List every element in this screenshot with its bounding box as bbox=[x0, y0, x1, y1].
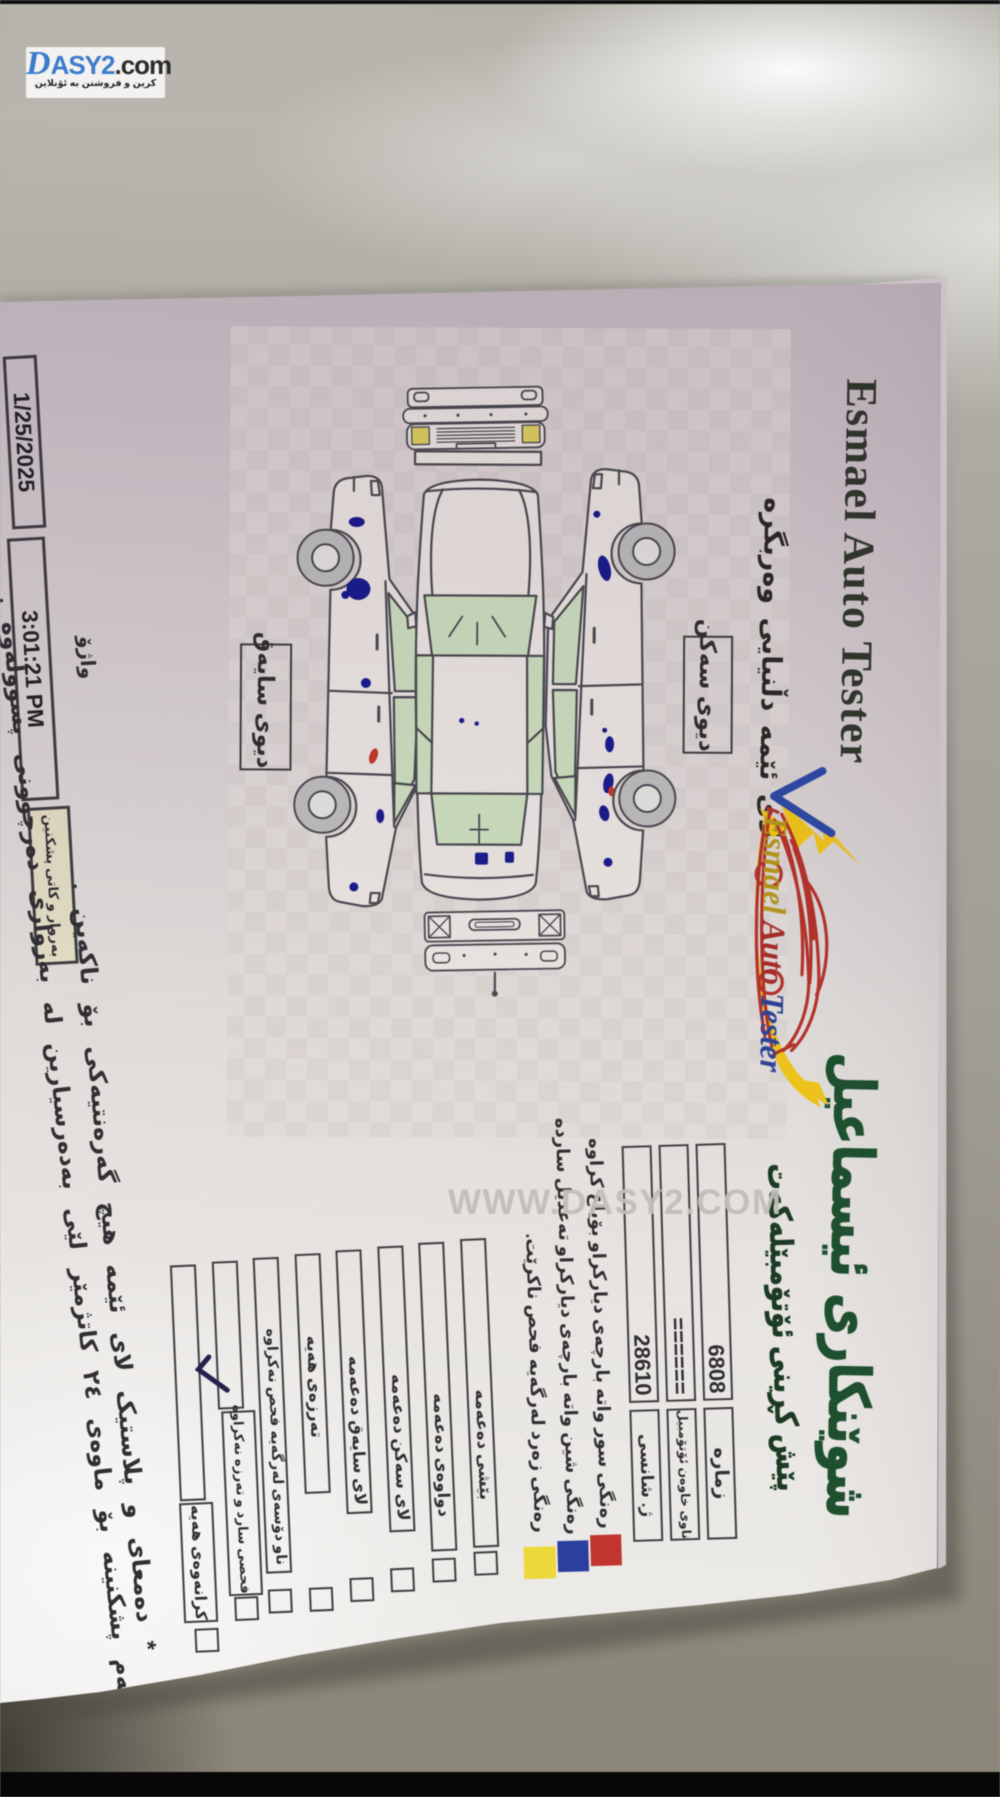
svg-text:Esmael Auto Tester: Esmael Auto Tester bbox=[752, 815, 792, 1074]
